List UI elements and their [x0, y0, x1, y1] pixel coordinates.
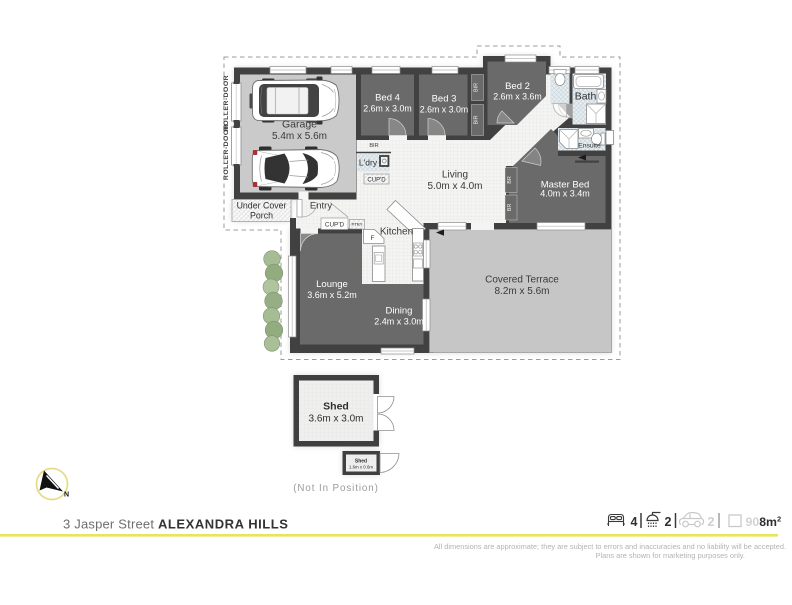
- svg-text:Kitchen: Kitchen: [380, 227, 413, 238]
- svg-text:CUP'D: CUP'D: [325, 222, 345, 229]
- svg-text:N: N: [64, 492, 69, 499]
- svg-text:BIR: BIR: [474, 115, 480, 124]
- svg-text:2.6m x 3.0m: 2.6m x 3.0m: [420, 105, 468, 115]
- svg-text:Lounge: Lounge: [316, 279, 348, 290]
- svg-text:Bed 2: Bed 2: [505, 81, 530, 92]
- svg-text:Garage: Garage: [282, 119, 317, 131]
- svg-text:4: 4: [631, 515, 638, 529]
- svg-text:2.6m x 3.6m: 2.6m x 3.6m: [493, 92, 541, 102]
- svg-text:3 Jasper Street ALEXANDRA HILL: 3 Jasper Street ALEXANDRA HILLS: [63, 517, 289, 532]
- svg-text:4.0m x 3.4m: 4.0m x 3.4m: [540, 189, 590, 199]
- svg-text:All dimensions are approximate: All dimensions are approximate; they are…: [434, 542, 786, 551]
- svg-text:Under Cover: Under Cover: [237, 201, 287, 211]
- svg-text:3.6m x 3.0m: 3.6m x 3.0m: [308, 414, 363, 425]
- svg-text:BIR: BIR: [369, 143, 378, 149]
- svg-text:Plans are shown for marketing: Plans are shown for marketing purposes o…: [596, 551, 745, 560]
- svg-text:Shed: Shed: [323, 401, 349, 413]
- svg-text:5.0m x 4.0m: 5.0m x 4.0m: [427, 181, 482, 192]
- svg-text:3.6m x 5.2m: 3.6m x 5.2m: [307, 290, 357, 300]
- svg-text:Living: Living: [442, 170, 468, 181]
- svg-text:Ensuite: Ensuite: [578, 143, 601, 150]
- svg-text:CUP'D: CUP'D: [367, 178, 386, 184]
- svg-text:8.2m x 5.6m: 8.2m x 5.6m: [494, 286, 549, 297]
- svg-text:2.6m x 3.0m: 2.6m x 3.0m: [363, 104, 411, 114]
- svg-text:Entry: Entry: [310, 201, 332, 212]
- svg-text:L'dry: L'dry: [359, 158, 378, 168]
- svg-text:(Not In Position): (Not In Position): [293, 483, 379, 494]
- svg-text:BIR: BIR: [474, 83, 480, 92]
- svg-text:BR: BR: [507, 204, 513, 212]
- svg-text:ROLLER-DOOR: ROLLER-DOOR: [223, 124, 230, 180]
- svg-text:Bed 4: Bed 4: [375, 93, 400, 104]
- svg-text:2: 2: [665, 515, 672, 529]
- svg-text:Porch: Porch: [250, 211, 273, 221]
- svg-text:908m2: 908m2: [746, 515, 782, 530]
- svg-text:F: F: [371, 235, 375, 242]
- svg-text:1.6m x 0.6m: 1.6m x 0.6m: [349, 465, 373, 470]
- svg-text:Bed 3: Bed 3: [432, 94, 457, 105]
- svg-text:5.4m x 5.6m: 5.4m x 5.6m: [272, 131, 327, 142]
- svg-text:Bath: Bath: [575, 91, 597, 103]
- svg-text:Dining: Dining: [386, 306, 413, 317]
- svg-text:2.4m x 3.0m: 2.4m x 3.0m: [374, 317, 424, 327]
- svg-text:BR: BR: [507, 176, 513, 184]
- svg-text:2: 2: [708, 515, 715, 529]
- svg-text:ROLLER-DOOR: ROLLER-DOOR: [223, 75, 230, 131]
- svg-text:PTRY: PTRY: [351, 222, 362, 227]
- svg-text:Covered Terrace: Covered Terrace: [485, 275, 559, 286]
